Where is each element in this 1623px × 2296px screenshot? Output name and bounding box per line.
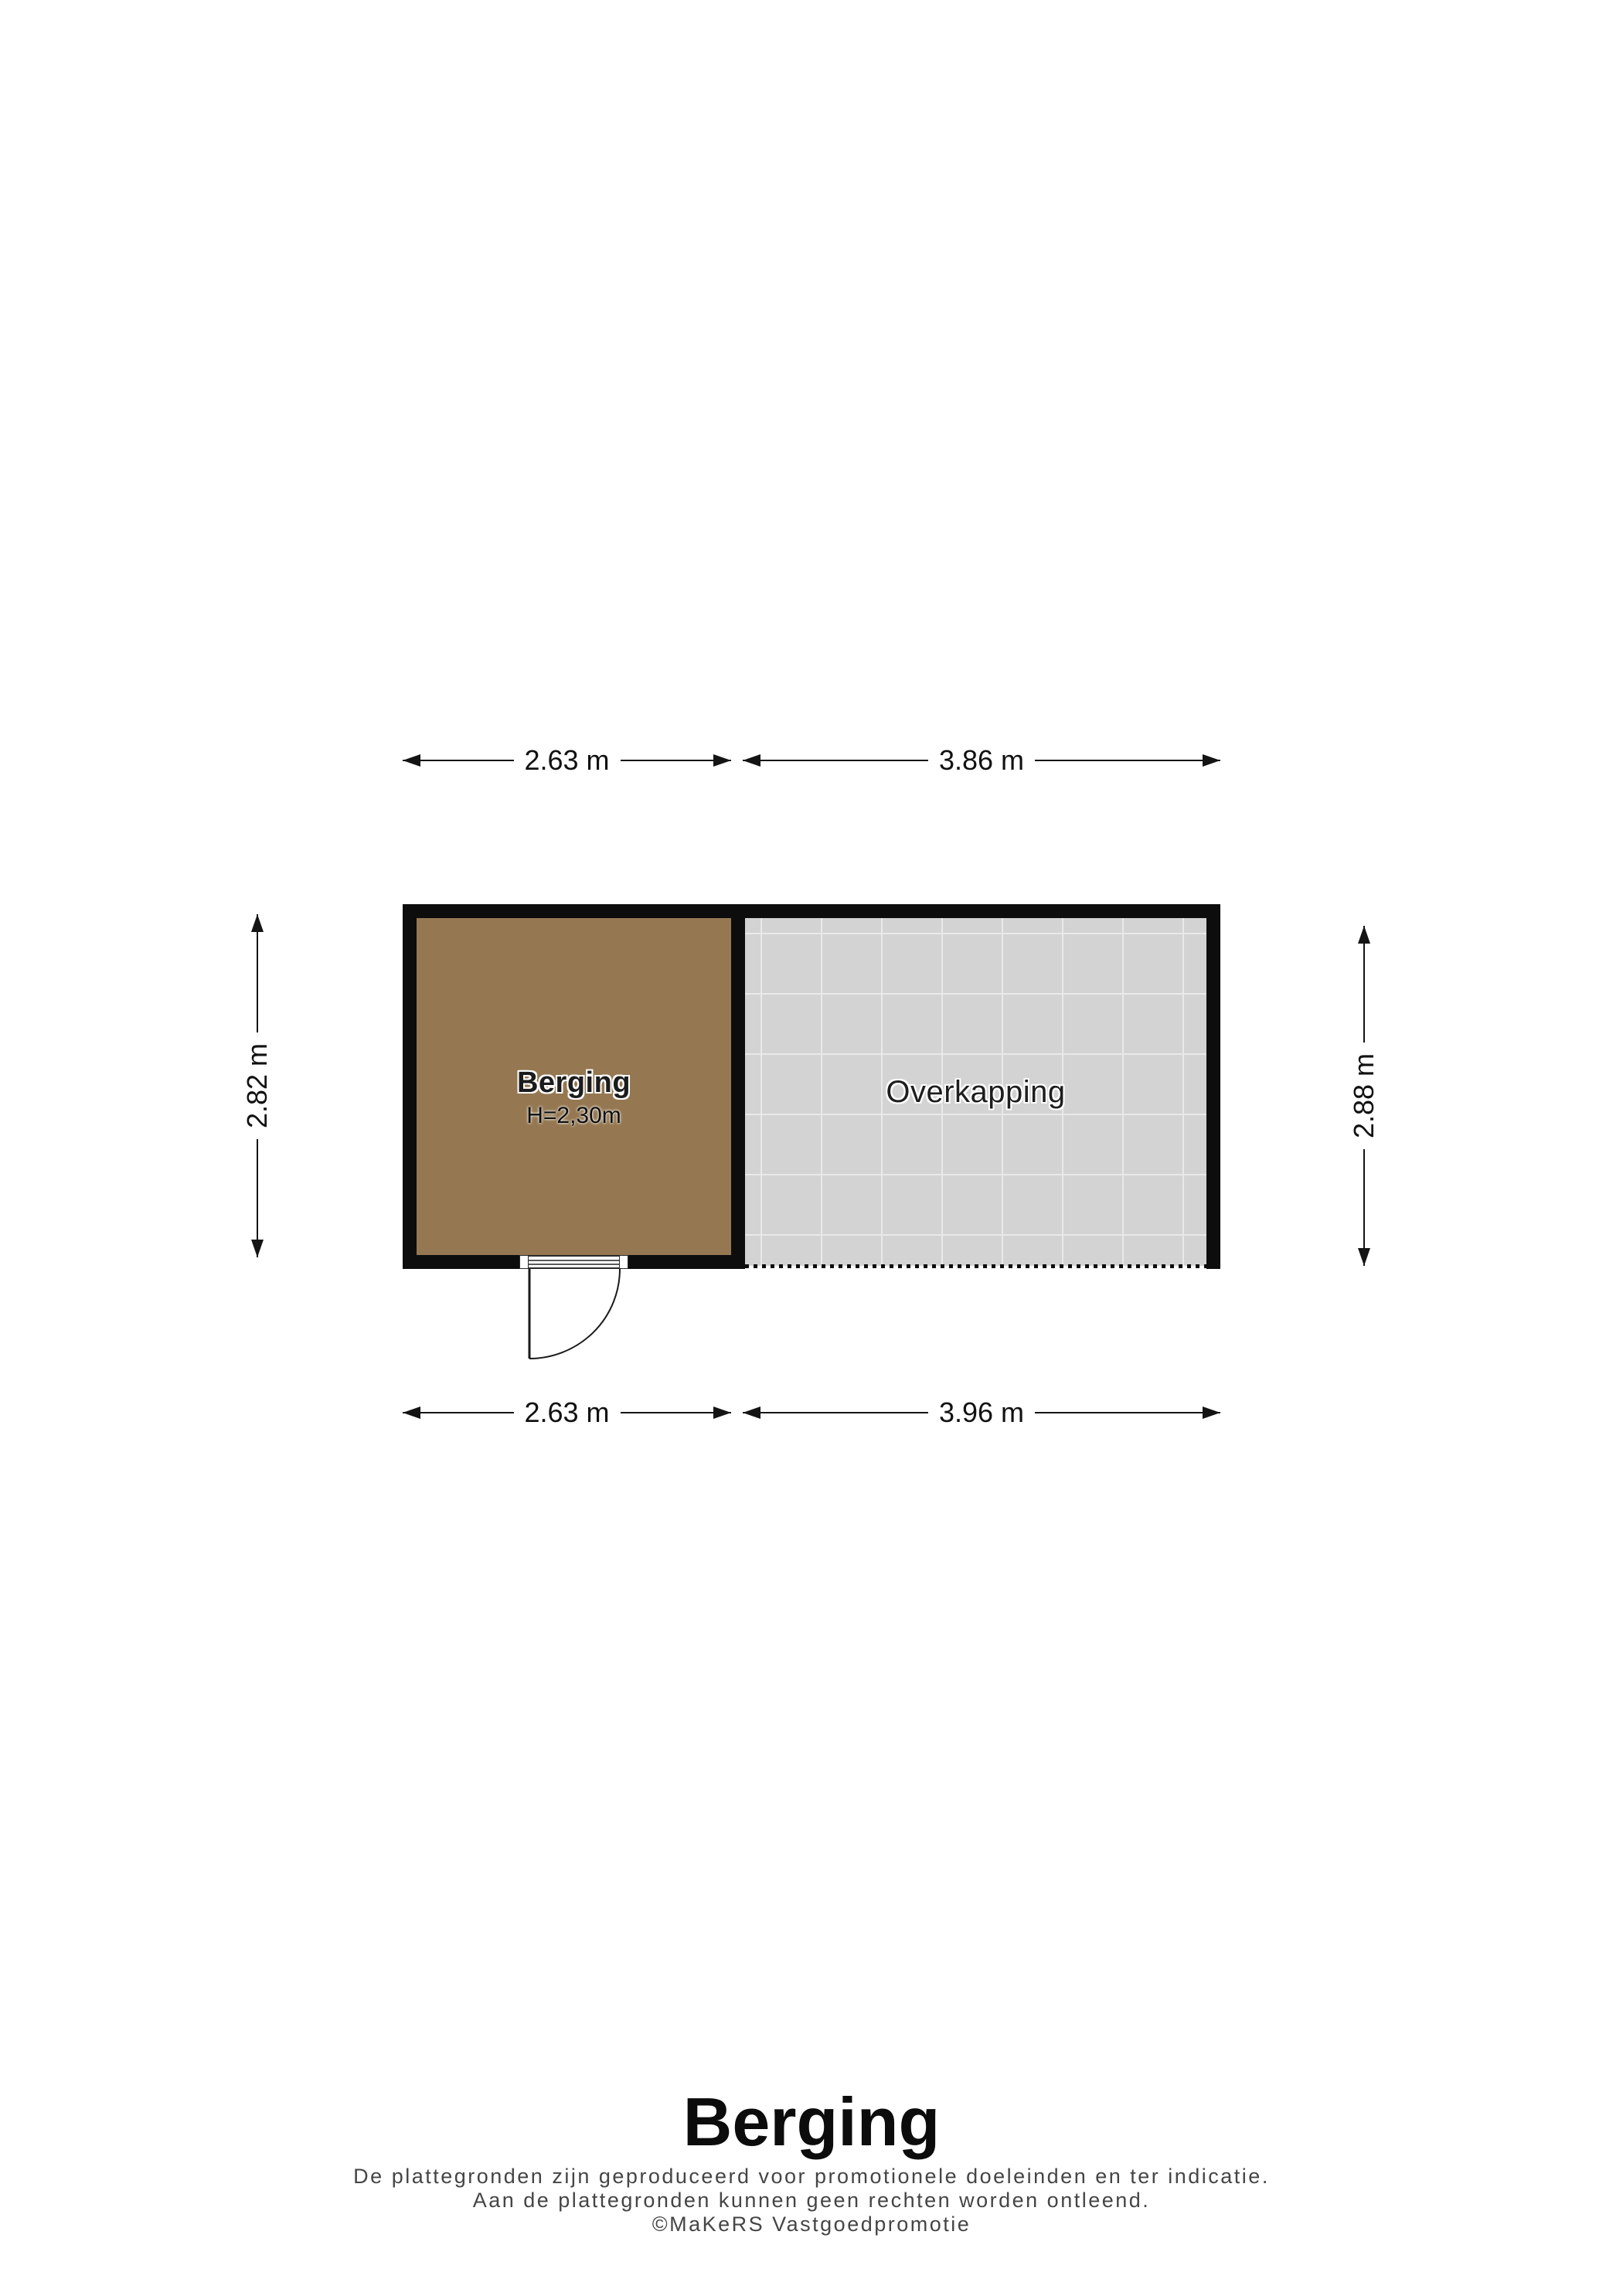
arrowhead-left-icon (743, 1407, 760, 1419)
arrowhead-up-icon (1358, 926, 1370, 944)
arrowhead-down-icon (251, 1240, 264, 1257)
arrowhead-right-icon (1203, 1407, 1220, 1419)
arrowhead-right-icon (1203, 754, 1220, 767)
page-title: Berging (0, 2088, 1623, 2156)
arrowhead-left-icon (743, 754, 760, 767)
arrowhead-down-icon (1358, 1248, 1370, 1266)
dimension-right-overkapping: 2.88 m (1347, 926, 1381, 1266)
door-swing-graphic (403, 904, 1220, 1383)
dimension-value: 3.96 m (928, 1396, 1035, 1429)
disclaimer-line-2: Aan de plattegronden kunnen geen rechten… (0, 2189, 1623, 2213)
dimension-value: 2.63 m (513, 1396, 620, 1429)
disclaimer-line-3: ©MaKeRS Vastgoedpromotie (0, 2213, 1623, 2236)
disclaimer: De plattegronden zijn geproduceerd voor … (0, 2165, 1623, 2236)
dimension-value: 2.63 m (513, 744, 620, 777)
door-swing-arc (529, 1269, 620, 1359)
arrowhead-up-icon (251, 914, 264, 932)
dimension-value: 2.82 m (241, 1032, 274, 1139)
dimension-top-overkapping: 3.86 m (743, 743, 1220, 777)
floorplan: Berging H=2,30m Overkapping (403, 904, 1220, 1269)
arrowhead-left-icon (403, 754, 420, 767)
arrowhead-right-icon (713, 1407, 731, 1419)
arrowhead-right-icon (713, 754, 731, 767)
dimension-bottom-berging: 2.63 m (403, 1396, 731, 1430)
dimension-left-berging: 2.82 m (240, 914, 274, 1257)
dimension-value: 2.88 m (1348, 1043, 1380, 1149)
dimension-top-berging: 2.63 m (403, 743, 731, 777)
arrowhead-left-icon (403, 1407, 420, 1419)
dimension-bottom-overkapping: 3.96 m (743, 1396, 1220, 1430)
floorplan-page: 2.63 m 3.86 m 2.82 m 2.88 m Berging H=2,… (0, 0, 1623, 2296)
disclaimer-line-1: De plattegronden zijn geproduceerd voor … (0, 2165, 1623, 2189)
dimension-value: 3.86 m (928, 744, 1035, 777)
